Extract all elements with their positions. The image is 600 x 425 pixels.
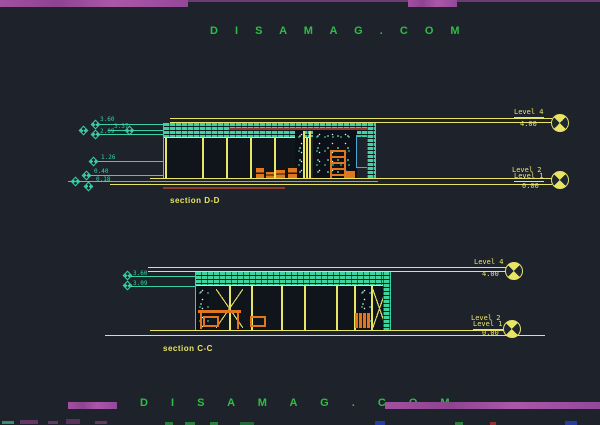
clipped-mark bbox=[2, 421, 14, 424]
clipped-mark bbox=[20, 420, 38, 424]
clipped-mark bbox=[95, 421, 107, 424]
clipped-mark bbox=[375, 421, 385, 425]
clipped-mark bbox=[66, 419, 80, 424]
clipped-mark bbox=[48, 421, 58, 424]
cad-viewport: D I S A M A G . C O M 3.60 3.37 2.09 1.2… bbox=[0, 0, 600, 425]
clipped-mark bbox=[565, 421, 577, 425]
clipped-edge-artifacts bbox=[0, 0, 600, 425]
